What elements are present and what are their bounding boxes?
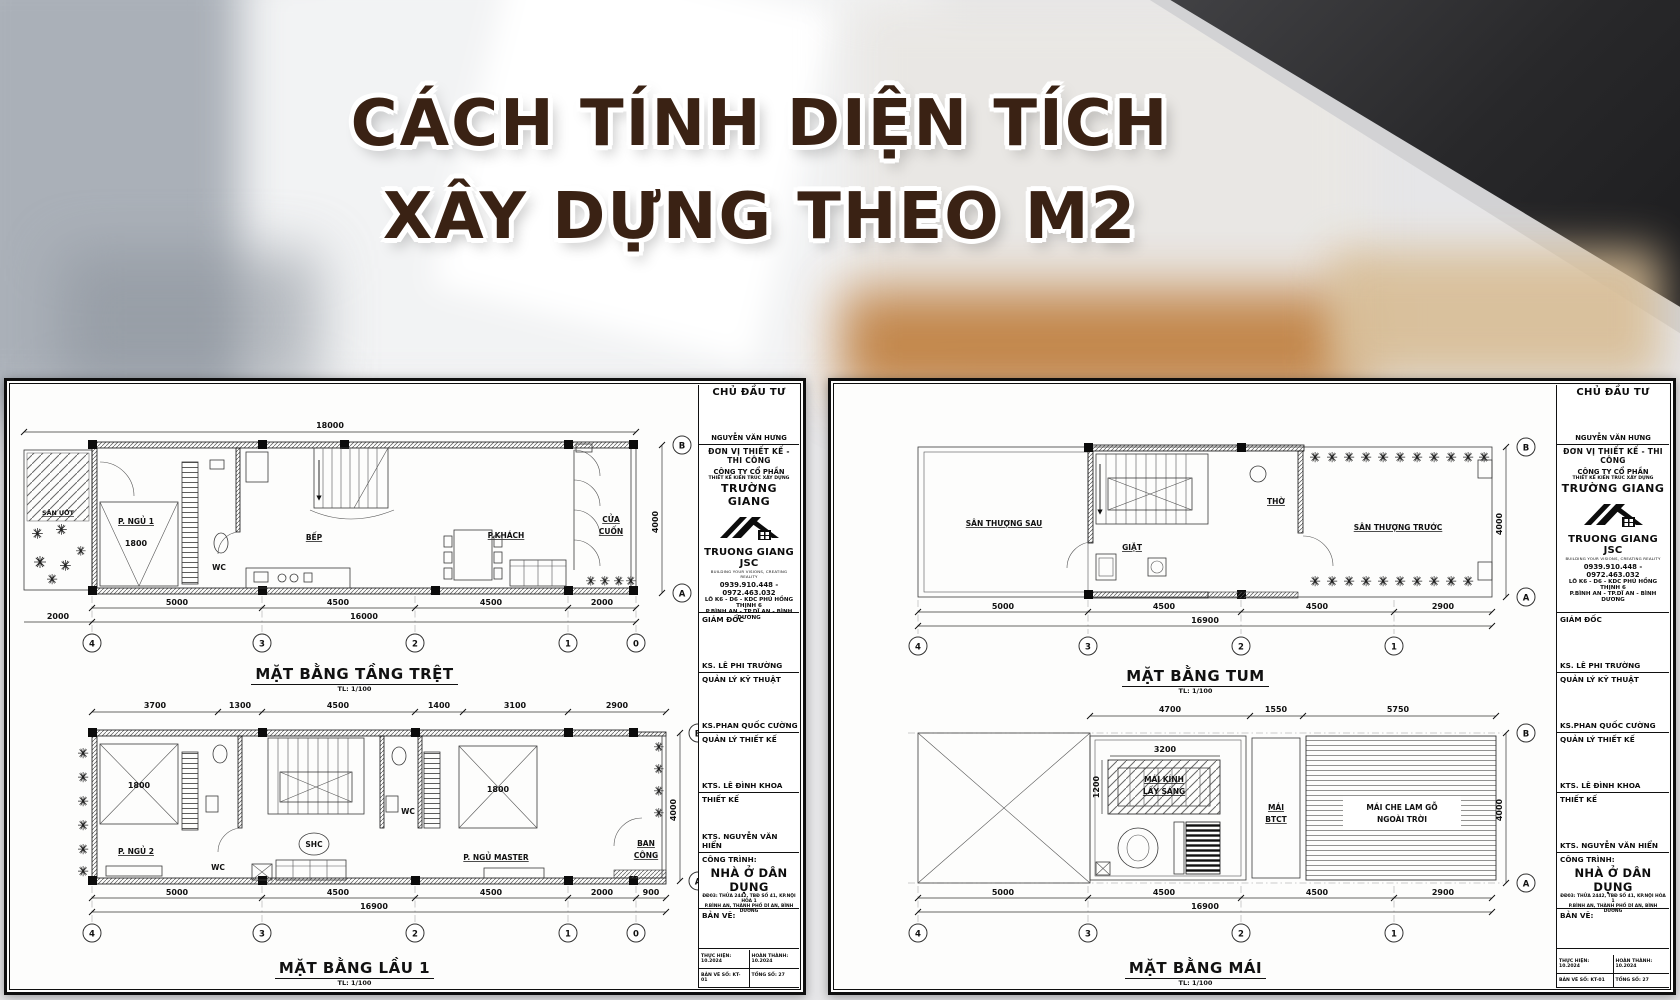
svg-text:P. NGỦ 2: P. NGỦ 2 xyxy=(118,846,154,856)
walls xyxy=(88,728,666,885)
grid-bubbles: 4 3 2 1 0 xyxy=(83,634,645,652)
svg-text:16000: 16000 xyxy=(350,612,378,621)
company-line2: THIẾT KẾ KIẾN TRÚC XÂY DỰNG xyxy=(702,476,796,481)
svg-text:4500: 4500 xyxy=(1153,888,1176,897)
owner-name: NGUYỄN VĂN HƯNG xyxy=(1557,434,1669,442)
terrace-back: SÂN THƯỢNG SAU xyxy=(918,447,1492,597)
role-designer: THIẾT KẾ KTS. NGUYỄN VĂN HIỂN xyxy=(699,793,799,853)
company-address2: P.BÌNH AN - TP.DĨ AN - BÌNH DƯƠNG xyxy=(1560,591,1666,603)
svg-text:LẤY SÁNG: LẤY SÁNG xyxy=(1143,786,1185,796)
bg-blob xyxy=(60,250,320,390)
company-line1: CÔNG TY CỔ PHẦN xyxy=(702,468,796,476)
svg-text:900: 900 xyxy=(643,888,660,897)
master-bedroom: 1800 P. NGỦ MASTER xyxy=(459,746,544,878)
project-label: CÔNG TRÌNH: xyxy=(702,855,796,864)
svg-text:0: 0 xyxy=(633,640,639,650)
page-title-line2: XÂY DỰNG THEO M2 xyxy=(250,171,1270,264)
title-block-left: CHỦ ĐẦU TƯ NGUYỄN VĂN HƯNG ĐƠN VỊ THIẾT … xyxy=(698,385,799,988)
svg-text:CỬA: CỬA xyxy=(602,514,620,524)
svg-text:2: 2 xyxy=(412,930,418,940)
svg-text:2000: 2000 xyxy=(47,612,70,621)
svg-text:1: 1 xyxy=(565,640,571,650)
svg-text:3200: 3200 xyxy=(1154,745,1177,754)
top-dimensions: 3700 1300 4500 1400 3100 2900 xyxy=(89,701,669,715)
svg-text:3700: 3700 xyxy=(144,701,167,710)
svg-text:2900: 2900 xyxy=(1432,602,1455,611)
svg-text:B: B xyxy=(1523,444,1529,454)
company-address1: LÔ K6 - D6 - KDC PHÚ HỒNG THỊNH 6 xyxy=(1560,579,1666,591)
drawing-label: BẢN VẼ: xyxy=(702,911,796,920)
svg-text:2000: 2000 xyxy=(591,888,614,897)
company-name-en: TRUONG GIANG JSC xyxy=(1560,534,1666,556)
grid-bubbles: 4 3 2 1 0 xyxy=(83,924,645,942)
bedroom2: 1800 P. NGỦ 2 xyxy=(100,744,198,876)
company-line2: THIẾT KẾ KIẾN TRÚC XÂY DỰNG xyxy=(1560,476,1666,481)
drawing-label: BẢN VẼ: xyxy=(1560,911,1666,920)
svg-text:BAN: BAN xyxy=(637,839,655,848)
company-tagline: BUILDING YOUR VISIONS, CREATING REALITY xyxy=(1560,556,1666,561)
svg-text:3: 3 xyxy=(1085,643,1091,653)
company-logo-icon xyxy=(718,510,780,546)
sheet-total: TỔNG SỐ: 27 xyxy=(1614,974,1670,987)
project-address1: ĐĐ03: THỬA 2442, TBĐ SỐ 41, KP.NỘI HÒA 1 xyxy=(1560,894,1666,904)
grid-bubbles: 4 3 2 1 xyxy=(909,924,1403,942)
company-phone: 0939.910.448 - 0972.463.032 xyxy=(702,581,796,597)
svg-text:4000: 4000 xyxy=(669,798,678,821)
svg-text:A: A xyxy=(1523,594,1530,604)
svg-text:1800: 1800 xyxy=(125,539,148,548)
svg-text:3: 3 xyxy=(259,930,265,940)
dates-row: THỰC HIỆN: 10.2024 HOÀN THÀNH: 10.2024 xyxy=(1557,955,1669,974)
owner-label: CHỦ ĐẦU TƯ xyxy=(1560,387,1666,398)
svg-text:P. NGỦ 1: P. NGỦ 1 xyxy=(118,516,154,526)
tan-blur xyxy=(1330,250,1660,380)
designer-section: ĐƠN VỊ THIẾT KẾ - THI CÔNG CÔNG TY CỔ PH… xyxy=(699,445,799,613)
svg-text:THỜ: THỜ xyxy=(1267,497,1285,506)
svg-text:5000: 5000 xyxy=(992,602,1015,611)
plan-title-mai: MẶT BẰNG MÁI TL: 1/100 xyxy=(836,958,1555,987)
svg-text:16900: 16900 xyxy=(360,902,388,911)
date-start: THỰC HIỆN: 10.2024 xyxy=(1557,955,1614,973)
svg-text:4500: 4500 xyxy=(1153,602,1176,611)
svg-text:P.KHÁCH: P.KHÁCH xyxy=(488,531,525,540)
svg-text:4500: 4500 xyxy=(1306,602,1329,611)
svg-text:5000: 5000 xyxy=(166,598,189,607)
company-name: TRƯỜNG GIANG xyxy=(1560,482,1666,495)
kitchen: BẾP xyxy=(246,452,350,588)
bottom-dimensions: 5000 4500 4500 2900 16900 xyxy=(915,888,1495,915)
stairs-shc: SHC xyxy=(252,738,364,880)
svg-text:4500: 4500 xyxy=(480,598,503,607)
svg-text:A: A xyxy=(1523,880,1530,890)
sheet-right: SÂN THƯỢNG SAU THỜ xyxy=(828,378,1676,995)
plants-left xyxy=(78,748,88,876)
svg-text:1200: 1200 xyxy=(1092,775,1101,798)
date-start: THỰC HIỆN: 10.2024 xyxy=(699,950,750,968)
sheet-left: 18000 SÂN ƯỚT xyxy=(4,378,806,995)
project-address1: ĐĐ03: THỬA 2442, TBĐ SỐ 41, KP.NỘI HÒA 1 xyxy=(702,894,796,904)
svg-text:4000: 4000 xyxy=(1495,512,1504,535)
role-designer: THIẾT KẾ KTS. NGUYỄN VĂN HIỂN xyxy=(1557,793,1669,853)
bottom-dimensions: 5000 4500 4500 2900 16900 xyxy=(915,602,1495,629)
wc: WC xyxy=(210,460,240,572)
plan-title-tum: MẶT BẰNG TUM TL: 1/100 xyxy=(836,666,1555,695)
svg-text:2: 2 xyxy=(1238,930,1244,940)
roof-void xyxy=(918,733,1090,883)
plan-tum: SÂN THƯỢNG SAU THỜ xyxy=(838,412,1548,662)
svg-text:A: A xyxy=(679,590,686,600)
owner-label: CHỦ ĐẦU TƯ xyxy=(702,387,796,398)
svg-text:WC: WC xyxy=(212,563,226,572)
svg-text:3: 3 xyxy=(1085,930,1091,940)
balcony: BAN CÔNG xyxy=(614,742,666,878)
svg-text:SHC: SHC xyxy=(305,840,323,849)
svg-text:1550: 1550 xyxy=(1265,705,1288,714)
svg-text:18000: 18000 xyxy=(316,421,344,430)
sheet-number: BẢN VẼ SỐ: KT-01 xyxy=(1557,974,1614,987)
designer-section: ĐƠN VỊ THIẾT KẾ - THI CÔNG CÔNG TY CỔ PH… xyxy=(1557,445,1669,613)
svg-text:B: B xyxy=(679,442,685,452)
svg-text:1: 1 xyxy=(565,930,571,940)
company-line1: CÔNG TY CỔ PHẦN xyxy=(1560,468,1666,476)
company-name: TRƯỜNG GIANG xyxy=(702,482,796,508)
tum-core: THỜ GIẶT xyxy=(1067,443,1333,599)
svg-text:5000: 5000 xyxy=(166,888,189,897)
right-dimension: 4000 B A xyxy=(1495,724,1535,892)
svg-text:0: 0 xyxy=(633,930,639,940)
svg-text:4000: 4000 xyxy=(1495,798,1504,821)
role-director: GIÁM ĐỐC KS. LÊ PHI TRƯỜNG xyxy=(699,613,799,673)
project-label: CÔNG TRÌNH: xyxy=(1560,855,1666,864)
svg-text:BTCT: BTCT xyxy=(1265,815,1287,824)
svg-text:4500: 4500 xyxy=(1306,888,1329,897)
svg-text:1400: 1400 xyxy=(428,701,451,710)
svg-text:3: 3 xyxy=(259,640,265,650)
svg-text:2000: 2000 xyxy=(591,598,614,607)
sheet-number: BẢN VẼ SỐ: KT-01 xyxy=(699,969,750,987)
svg-text:CÔNG: CÔNG xyxy=(634,851,658,860)
page-title: CÁCH TÍNH DIỆN TÍCH XÂY DỰNG THEO M2 xyxy=(250,78,1270,264)
svg-text:4500: 4500 xyxy=(480,888,503,897)
date-finish: HOÀN THÀNH: 10.2024 xyxy=(1614,955,1670,973)
sheet-number-row: BẢN VẼ SỐ: KT-01 TỔNG SỐ: 27 xyxy=(699,969,799,988)
wc1: WC xyxy=(206,745,242,872)
plan-title-tang-tret: MẶT BẰNG TẦNG TRỆT TL: 1/100 xyxy=(12,664,697,693)
role-design-manager: QUẢN LÝ THIẾT KẾ KTS. LÊ ĐÌNH KHOA xyxy=(699,733,799,793)
wc2: WC xyxy=(386,747,440,828)
owner-section: CHỦ ĐẦU TƯ NGUYỄN VĂN HƯNG xyxy=(699,385,799,445)
plan-mai: 4700 1550 5750 3200 MÁI KÍNH xyxy=(838,698,1548,954)
svg-text:1800: 1800 xyxy=(487,785,510,794)
owner-section: CHỦ ĐẦU TƯ NGUYỄN VĂN HƯNG xyxy=(1557,385,1669,445)
svg-text:4: 4 xyxy=(915,643,921,653)
right-plan-area: SÂN THƯỢNG SAU THỜ xyxy=(836,386,1555,987)
svg-text:WC: WC xyxy=(211,863,225,872)
svg-text:GIẶT: GIẶT xyxy=(1122,543,1143,552)
top-dimensions: 4700 1550 5750 xyxy=(1087,705,1499,719)
company-logo-icon xyxy=(1582,497,1644,533)
project-name: NHÀ Ở DÂN DỤNG xyxy=(702,866,796,894)
san-uot: SÂN ƯỚT xyxy=(24,450,92,590)
company-phone: 0939.910.448 - 0972.463.032 xyxy=(1560,563,1666,579)
svg-text:16900: 16900 xyxy=(1191,616,1219,625)
plan-title-lau-1: MẶT BẰNG LẦU 1 TL: 1/100 xyxy=(12,958,697,987)
svg-text:WC: WC xyxy=(401,807,415,816)
roof-btct: MÁI BTCT xyxy=(1252,738,1300,878)
svg-text:2900: 2900 xyxy=(606,701,629,710)
role-technical-manager: QUẢN LÝ KỸ THUẬT KS.PHAN QUỐC CƯỜNG xyxy=(1557,673,1669,733)
svg-text:4500: 4500 xyxy=(327,888,350,897)
stairs xyxy=(310,448,394,519)
role-technical-manager: QUẢN LÝ KỸ THUẬT KS.PHAN QUỐC CƯỜNG xyxy=(699,673,799,733)
role-design-manager: QUẢN LÝ THIẾT KẾ KTS. LÊ ĐÌNH KHOA xyxy=(1557,733,1669,793)
overall-dimension: 18000 xyxy=(21,421,639,435)
svg-text:BẾP: BẾP xyxy=(306,532,323,542)
svg-text:4: 4 xyxy=(89,640,95,650)
svg-text:4000: 4000 xyxy=(651,510,660,533)
company-name-en: TRUONG GIANG JSC xyxy=(702,547,796,569)
designer-label: ĐƠN VỊ THIẾT KẾ - THI CÔNG xyxy=(1560,447,1666,465)
project-section: CÔNG TRÌNH: NHÀ Ở DÂN DỤNG ĐĐ03: THỬA 24… xyxy=(699,853,799,909)
roof-core: 3200 MÁI KÍNH LẤY SÁNG 1200 xyxy=(1090,736,1246,880)
svg-text:MÁI CHE LAM GỖ: MÁI CHE LAM GỖ xyxy=(1366,802,1437,812)
svg-text:2900: 2900 xyxy=(1432,888,1455,897)
svg-text:1: 1 xyxy=(1391,643,1397,653)
svg-text:5750: 5750 xyxy=(1387,705,1410,714)
title-block-right: CHỦ ĐẦU TƯ NGUYỄN VĂN HƯNG ĐƠN VỊ THIẾT … xyxy=(1556,385,1669,988)
svg-text:MÁI: MÁI xyxy=(1268,803,1284,812)
svg-text:5000: 5000 xyxy=(992,888,1015,897)
svg-text:4500: 4500 xyxy=(327,598,350,607)
terrace-front: SÂN THƯỢNG TRƯỚC xyxy=(1208,452,1492,598)
grid-bubbles: 4 3 2 1 xyxy=(909,637,1403,655)
svg-text:SÂN ƯỚT: SÂN ƯỚT xyxy=(42,508,75,517)
right-dimension: 4000 B A xyxy=(1495,438,1535,606)
date-finish: HOÀN THÀNH: 10.2024 xyxy=(750,950,800,968)
company-tagline: BUILDING YOUR VISIONS, CREATING REALITY xyxy=(702,569,796,579)
poster-canvas: { "title": { "line1": "CÁCH TÍNH DIỆN TÍ… xyxy=(0,0,1680,1000)
svg-text:2: 2 xyxy=(1238,643,1244,653)
plan-tang-tret: 18000 SÂN ƯỚT xyxy=(14,410,714,660)
svg-text:2: 2 xyxy=(412,640,418,650)
role-director: GIÁM ĐỐC KS. LÊ PHI TRƯỜNG xyxy=(1557,613,1669,673)
dates-row: THỰC HIỆN: 10.2024 HOÀN THÀNH: 10.2024 xyxy=(699,950,799,969)
project-section: CÔNG TRÌNH: NHÀ Ở DÂN DỤNG ĐĐ03: THỬA 24… xyxy=(1557,853,1669,909)
left-plan-area: 18000 SÂN ƯỚT xyxy=(12,386,697,987)
svg-text:SÂN THƯỢNG TRƯỚC: SÂN THƯỢNG TRƯỚC xyxy=(1354,523,1443,532)
svg-text:1: 1 xyxy=(1391,930,1397,940)
svg-text:CUỐN: CUỐN xyxy=(599,526,623,536)
cua-cuon: CỬA CUỐN xyxy=(574,444,636,586)
plan-lau-1: 3700 1300 4500 1400 3100 2900 xyxy=(14,696,714,954)
svg-text:4500: 4500 xyxy=(327,701,350,710)
designer-label: ĐƠN VỊ THIẾT KẾ - THI CÔNG xyxy=(702,447,796,465)
svg-text:SÂN THƯỢNG SAU: SÂN THƯỢNG SAU xyxy=(966,519,1042,528)
sheet-number-row: BẢN VẼ SỐ: KT-01 TỔNG SỐ: 27 xyxy=(1557,974,1669,988)
drawing-section: BẢN VẼ: xyxy=(1557,909,1669,949)
living-room: P.KHÁCH xyxy=(444,530,566,586)
svg-text:NGOÀI TRỜI: NGOÀI TRỜI xyxy=(1377,815,1427,824)
right-dimension: 4000 B A xyxy=(651,436,691,602)
svg-text:1800: 1800 xyxy=(128,781,151,790)
svg-text:P. NGỦ MASTER: P. NGỦ MASTER xyxy=(463,852,529,862)
bedroom1: P. NGỦ 1 1800 xyxy=(100,462,198,586)
owner-name: NGUYỄN VĂN HƯNG xyxy=(699,434,799,442)
svg-text:16900: 16900 xyxy=(1191,902,1219,911)
svg-text:1300: 1300 xyxy=(229,701,252,710)
svg-text:4: 4 xyxy=(89,930,95,940)
roof-lam-go: MÁI CHE LAM GỖ NGOÀI TRỜI xyxy=(1306,736,1496,880)
sheet-total: TỔNG SỐ: 27 xyxy=(750,969,800,987)
drawing-section: BẢN VẼ: xyxy=(699,909,799,949)
project-name: NHÀ Ở DÂN DỤNG xyxy=(1560,866,1666,894)
page-title-line1: CÁCH TÍNH DIỆN TÍCH xyxy=(250,78,1270,171)
svg-text:4700: 4700 xyxy=(1159,705,1182,714)
svg-text:3100: 3100 xyxy=(504,701,527,710)
company-address1: LÔ K6 - D6 - KDC PHÚ HỒNG THỊNH 6 xyxy=(702,597,796,609)
bottom-dimensions: 5000 4500 4500 2000 2000 16000 xyxy=(24,598,639,625)
bottom-dimensions: 5000 4500 4500 2000 900 16900 xyxy=(89,888,669,915)
svg-text:MÁI KÍNH: MÁI KÍNH xyxy=(1144,775,1184,784)
svg-text:B: B xyxy=(1523,730,1529,740)
svg-text:4: 4 xyxy=(915,930,921,940)
